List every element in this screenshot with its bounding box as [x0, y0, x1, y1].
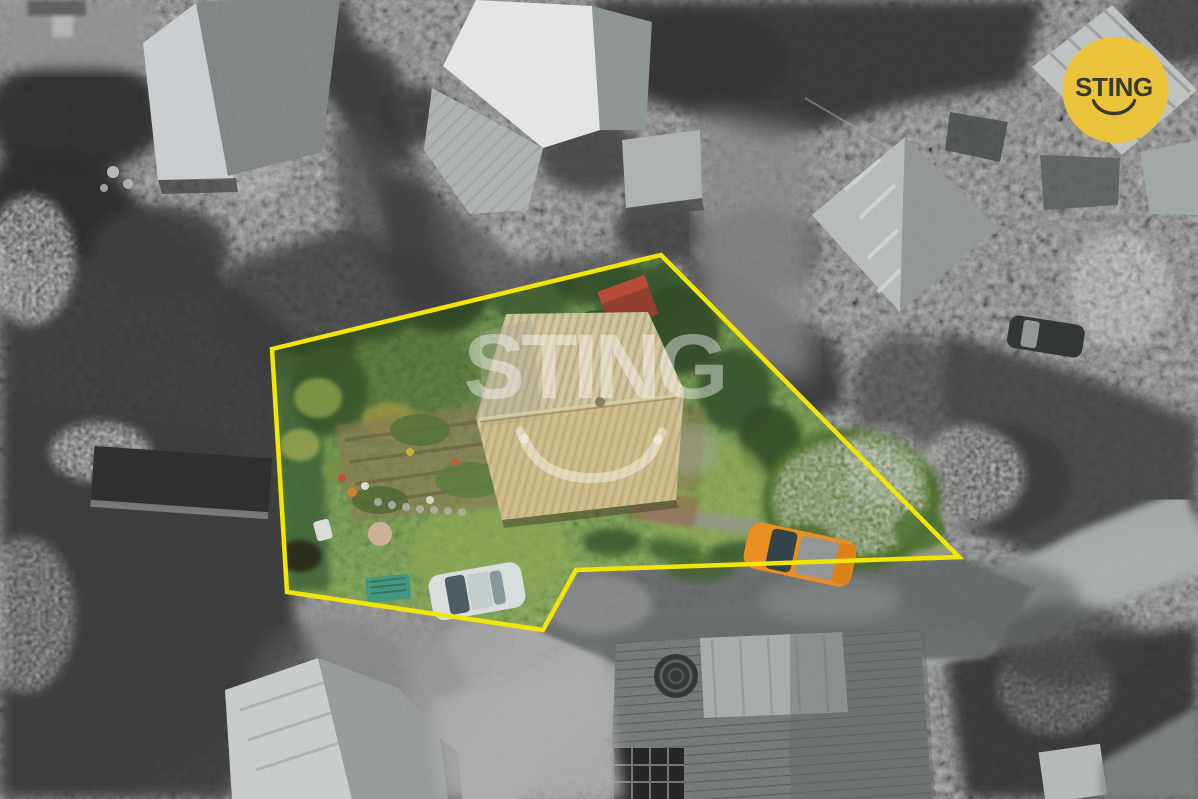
- svg-text:STING: STING: [463, 316, 724, 418]
- svg-text:STING: STING: [1075, 72, 1153, 102]
